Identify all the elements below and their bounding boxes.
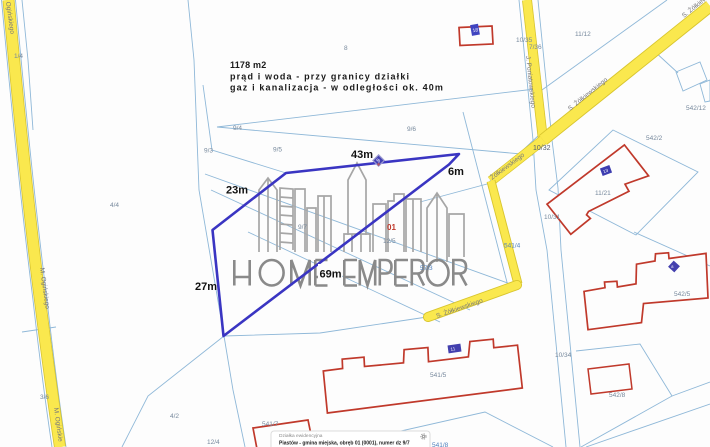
svg-text:Piastów - gmina miejska, obręb: Piastów - gmina miejska, obręb 01 (0001)… bbox=[279, 441, 410, 447]
svg-text:9/5: 9/5 bbox=[273, 147, 282, 154]
svg-text:57/3: 57/3 bbox=[420, 265, 433, 272]
svg-text:9/4: 9/4 bbox=[233, 125, 242, 132]
svg-text:gaz i kanalizacja - w odległoś: gaz i kanalizacja - w odległości ok. 40m bbox=[230, 83, 444, 93]
svg-text:10/31: 10/31 bbox=[544, 214, 561, 221]
svg-text:3/6: 3/6 bbox=[40, 394, 49, 401]
svg-text:prąd i woda - przy granicy dzi: prąd i woda - przy granicy działki bbox=[230, 72, 410, 82]
svg-text:10/34: 10/34 bbox=[555, 352, 572, 359]
svg-text:541/7: 541/7 bbox=[262, 421, 279, 428]
svg-text:9/7: 9/7 bbox=[298, 224, 307, 231]
svg-text:11/12: 11/12 bbox=[575, 31, 591, 38]
svg-text:7/36: 7/36 bbox=[529, 44, 542, 51]
svg-text:542/8: 542/8 bbox=[609, 392, 626, 399]
svg-text:6m: 6m bbox=[448, 166, 464, 178]
svg-text:1/4: 1/4 bbox=[14, 53, 23, 60]
svg-text:11/21: 11/21 bbox=[595, 190, 611, 197]
svg-text:1178 m2: 1178 m2 bbox=[230, 60, 266, 70]
svg-text:23m: 23m bbox=[226, 185, 248, 197]
svg-text:542/2: 542/2 bbox=[646, 135, 663, 142]
svg-text:10/32: 10/32 bbox=[533, 145, 551, 152]
svg-text:27m: 27m bbox=[195, 281, 217, 293]
svg-text:Działka ewidencyjna: Działka ewidencyjna bbox=[279, 433, 323, 439]
svg-text:542/5: 542/5 bbox=[674, 291, 691, 298]
svg-text:542/12: 542/12 bbox=[686, 105, 706, 112]
svg-text:541/5: 541/5 bbox=[430, 372, 447, 379]
svg-text:9/3: 9/3 bbox=[204, 148, 213, 155]
svg-text:12/4: 12/4 bbox=[207, 439, 220, 446]
svg-text:01: 01 bbox=[387, 223, 396, 232]
svg-text:10/35: 10/35 bbox=[516, 37, 533, 44]
svg-text:4/2: 4/2 bbox=[170, 413, 179, 420]
svg-text:12/5: 12/5 bbox=[383, 238, 396, 245]
svg-text:69m: 69m bbox=[320, 269, 342, 281]
svg-text:43m: 43m bbox=[351, 149, 373, 161]
svg-text:541/8: 541/8 bbox=[432, 442, 449, 447]
svg-text:541/4: 541/4 bbox=[504, 243, 521, 250]
svg-text:8: 8 bbox=[344, 45, 348, 52]
svg-text:4/4: 4/4 bbox=[110, 202, 119, 209]
svg-text:9/6: 9/6 bbox=[407, 126, 416, 133]
